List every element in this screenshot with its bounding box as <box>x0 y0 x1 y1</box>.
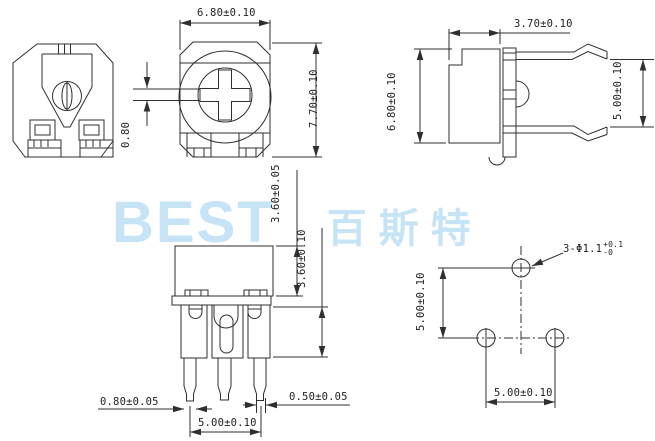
bottom-bump <box>489 157 505 165</box>
bottom-view-drawing <box>13 44 113 157</box>
dim-pin-tip-width: 0.50±0.05 <box>289 391 348 404</box>
drawing-linework <box>0 0 655 441</box>
dim-side-height: 6.80±0.10 <box>386 72 399 131</box>
hole-diameter-callout: 3-Φ1.1 +0.1 -0 <box>563 241 623 257</box>
rotor-inner-circle <box>198 68 252 122</box>
upper-lead <box>516 44 607 60</box>
dim-side-depth: 3.70±0.10 <box>514 18 573 31</box>
cross-slot <box>200 70 250 120</box>
top-view-drawing <box>133 42 271 157</box>
lower-lead <box>516 126 607 141</box>
pin-right <box>254 358 266 401</box>
side-view-drawing <box>449 44 607 165</box>
dim-top-view-height: 7.70±0.10 <box>308 69 321 128</box>
technical-drawing-page: BEST 百斯特 <box>0 0 655 441</box>
hole-callout-leader <box>532 253 563 266</box>
dim-hole-vertical-pitch: 5.00±0.10 <box>415 272 428 331</box>
hole-tolerance-lower: -0 <box>603 249 623 257</box>
hole-spec-text: 3-Φ1.1 <box>563 243 602 256</box>
pin-center <box>218 358 231 400</box>
dim-case-height: 3.60±0.05 <box>270 164 283 223</box>
center-slot <box>214 305 238 328</box>
dim-slot-width: 0.80 <box>120 122 133 148</box>
dim-pin-width: 0.80±0.05 <box>100 396 159 409</box>
dim-top-view-width: 6.80±0.10 <box>197 7 256 20</box>
rotor-outer-circle <box>179 51 271 143</box>
slot-extension-lines <box>133 89 200 101</box>
dim-hole-horizontal-pitch: 5.00±0.10 <box>494 387 553 400</box>
front-view-drawing <box>172 246 273 401</box>
hole-tolerance-stack: +0.1 -0 <box>603 241 623 257</box>
dim-lead-spacing: 5.00±0.10 <box>612 61 625 120</box>
dim-pin-pitch: 5.00±0.10 <box>198 417 257 430</box>
dim-collar-height: 3.60±0.10 <box>296 229 309 288</box>
shaft-end <box>516 81 529 107</box>
hole-pattern-drawing <box>438 246 571 408</box>
pin-left <box>184 358 196 401</box>
